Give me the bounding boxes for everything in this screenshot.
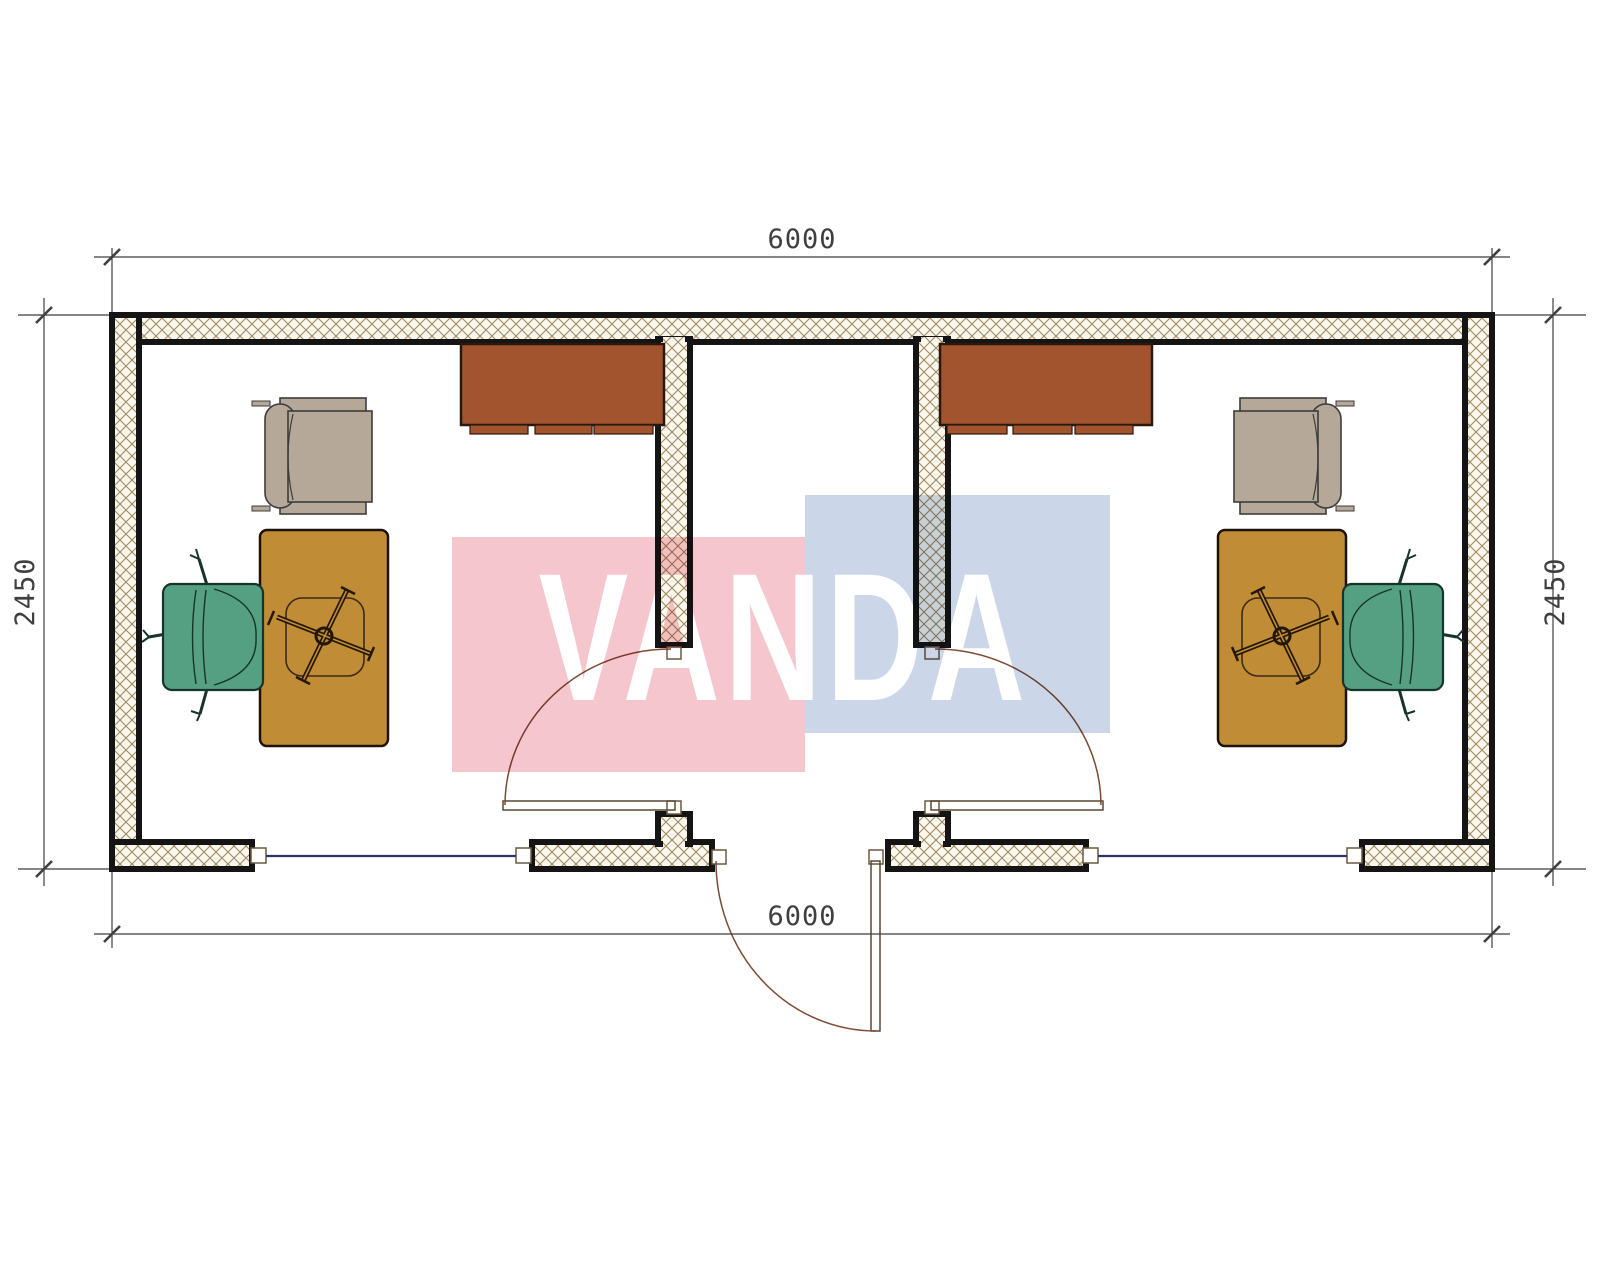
- wall-bottom-seg-a: [112, 842, 252, 869]
- door-leaf: [931, 801, 1103, 810]
- desk-right: [1218, 530, 1346, 746]
- door-jamb: [925, 801, 939, 814]
- dimension-right: 2450: [1495, 298, 1586, 886]
- dimension-label-right: 2450: [1540, 557, 1571, 626]
- dimension-label-top: 6000: [767, 224, 836, 255]
- door-jamb: [712, 850, 726, 864]
- watermark: VANDA: [452, 495, 1110, 772]
- armchair-right: [1234, 398, 1354, 514]
- floor-plan-page: VANDA 6000 6000 2450: [0, 0, 1600, 1280]
- windows: [251, 848, 1362, 863]
- wall-left: [112, 315, 139, 869]
- office-chair-left: [142, 549, 263, 721]
- door-swing-arc: [716, 861, 876, 1031]
- door-leaf: [503, 801, 675, 810]
- entrance-door: [716, 861, 880, 1031]
- wall-top: [112, 315, 1492, 342]
- door-leaf: [871, 861, 880, 1031]
- armchair-left: [252, 398, 372, 514]
- window-jamb: [251, 848, 266, 863]
- window-jamb: [1347, 848, 1362, 863]
- dimension-label-bottom: 6000: [767, 901, 836, 932]
- wall-right: [1465, 315, 1492, 869]
- dimension-left: 2450: [10, 298, 109, 886]
- cabinet-left: [461, 344, 664, 434]
- window-jamb: [1083, 848, 1098, 863]
- dimension-bottom: 6000: [94, 872, 1510, 948]
- window-jamb: [516, 848, 531, 863]
- office-chair-right: [1343, 549, 1464, 721]
- dimension-label-left: 2450: [10, 557, 41, 626]
- watermark-brand-text: VANDA: [538, 535, 1029, 738]
- floor-plan-svg: VANDA 6000 6000 2450: [0, 0, 1600, 1280]
- cabinet-right: [940, 344, 1152, 434]
- wall-bottom-seg-d: [1362, 842, 1492, 869]
- dimension-top: 6000: [94, 224, 1510, 312]
- door-jamb: [667, 801, 681, 814]
- desk-left: [260, 530, 388, 746]
